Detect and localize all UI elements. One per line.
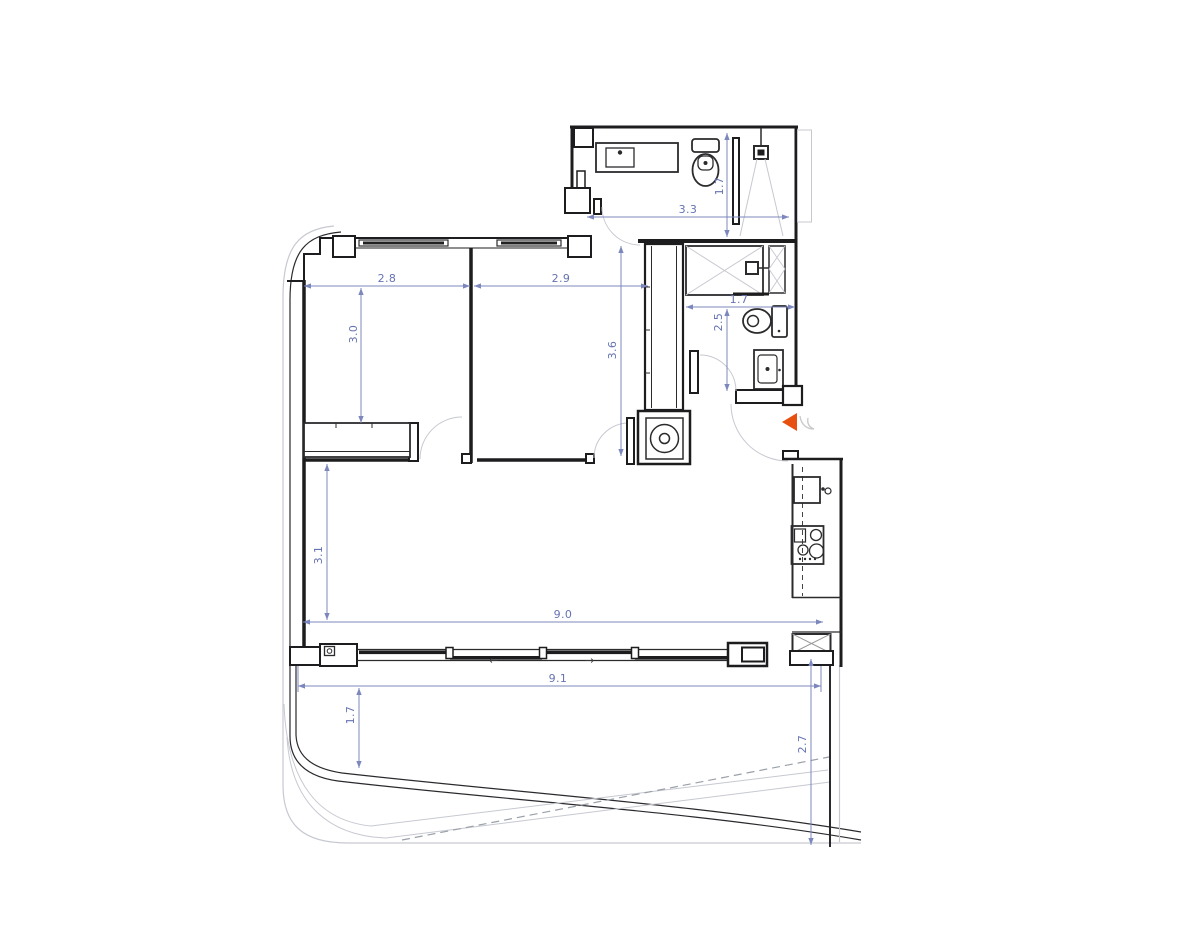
shower-head-core (758, 150, 765, 156)
entrance (731, 404, 814, 461)
faucet-dot (766, 367, 770, 371)
burner (811, 530, 822, 541)
closet-wall (627, 418, 634, 464)
kitchen-sink-icon (794, 477, 831, 503)
knob-dot (809, 558, 811, 560)
terrace-curve-light-1 (284, 704, 828, 826)
dim-bedroom1-width: 2.8 (304, 272, 470, 286)
bathroom-2 (686, 246, 802, 405)
dim-value: 2.5 (712, 313, 725, 332)
wardrobe-icon (304, 423, 410, 457)
wall-corner (290, 647, 320, 665)
entrance-arrow-icon (782, 413, 797, 431)
sink-basin (794, 477, 820, 503)
bedroom-walls (287, 236, 634, 649)
knob-dot (814, 558, 816, 560)
mullion (632, 648, 639, 659)
dim-bath2-depth: 2.5 (712, 309, 727, 391)
facade-railing-inner (296, 666, 861, 832)
door-jamb (586, 454, 594, 463)
door-swing-arc (420, 417, 462, 459)
radiator-body (769, 246, 785, 293)
dim-living-depth: 3.1 (312, 464, 327, 620)
drain (748, 316, 759, 327)
hall-closet (645, 244, 683, 410)
closet-outline (645, 244, 683, 410)
dim-value: 1.7 (730, 293, 749, 306)
washing-machine-icon (638, 411, 690, 464)
dim-value: 2.8 (378, 272, 397, 285)
window-glazing (501, 242, 557, 245)
knob-dot (799, 558, 801, 560)
faucet-dot (821, 487, 825, 491)
radiator-icon (769, 246, 785, 293)
door-jamb (594, 199, 601, 214)
faucet-ring (825, 488, 831, 494)
exterior-fin (798, 130, 812, 222)
column (333, 236, 355, 257)
dim-living-width: 9.0 (303, 608, 823, 622)
dim-terrace-depth-right: 2.7 (796, 659, 811, 845)
dim-value: 3.1 (312, 546, 325, 565)
spray-line (740, 159, 757, 236)
floor-plan-canvas: ← → 3.3 1.7 2.8 2.9 3.0 3.6 (0, 0, 1184, 947)
vanity-sink-icon (596, 143, 678, 172)
window-icon (359, 240, 448, 246)
dim-value: 3.3 (679, 203, 698, 216)
dim-value: 2.9 (552, 272, 571, 285)
glass-partition (733, 138, 739, 224)
window-glazing (363, 242, 444, 245)
terrace-dashed-line (402, 757, 829, 840)
kitchen (782, 459, 843, 667)
radiator-pattern (769, 246, 785, 293)
spray-line (765, 159, 783, 236)
column (783, 386, 802, 405)
dim-value: 9.0 (554, 608, 573, 621)
shower-icon (733, 128, 783, 236)
door-jamb (690, 351, 698, 393)
mullion (540, 648, 547, 659)
dim-terrace-depth-left: 1.7 (344, 688, 359, 768)
door-swing-arc (594, 423, 629, 458)
entrance-swoosh (800, 416, 814, 429)
flush-dot (778, 330, 781, 333)
dim-value: 9.1 (549, 672, 568, 685)
dim-bedroom2-width: 2.9 (474, 272, 648, 286)
control-panel (795, 529, 806, 542)
shower-icon (686, 246, 770, 295)
sliding-panel (635, 656, 728, 660)
faucet-dot (778, 369, 781, 372)
dim-value: 3.0 (347, 325, 360, 344)
dim-value: 1.7 (713, 177, 726, 196)
toilet-icon (743, 306, 787, 337)
mullion (446, 648, 453, 659)
tank (772, 306, 787, 337)
faucet-dot (618, 150, 622, 154)
dim-value: 2.7 (796, 735, 809, 754)
sliding-panel (359, 651, 448, 655)
dim-terrace-width: 9.1 (298, 666, 821, 692)
dim-value: 1.7 (344, 706, 357, 725)
door-swing-arc (602, 207, 640, 245)
column (565, 188, 590, 213)
mixer-box (746, 262, 758, 274)
burner (810, 544, 824, 558)
wall-band (736, 390, 784, 403)
knob-dot (804, 558, 806, 560)
column (568, 236, 591, 257)
column (574, 128, 593, 147)
south-window-wall: ← → (290, 643, 767, 667)
dim-bath1-width: 3.3 (587, 203, 789, 217)
window-icon (497, 240, 561, 246)
slide-direction-right: → (585, 654, 594, 667)
door-swing-arc (731, 404, 788, 461)
slide-direction-left: ← (489, 654, 498, 667)
tank (692, 139, 719, 152)
sink-icon (754, 350, 783, 389)
drain-dot (704, 161, 708, 165)
corner-inset (742, 648, 764, 662)
floor-plan-drawing: ← → 3.3 1.7 2.8 2.9 3.0 3.6 (0, 0, 1184, 947)
door-jamb (462, 454, 471, 463)
door-swing-arc (700, 355, 736, 391)
cooktop-icon (792, 526, 824, 564)
dim-bedroom1-depth: 3.0 (347, 288, 361, 423)
dim-value: 3.6 (606, 341, 619, 360)
